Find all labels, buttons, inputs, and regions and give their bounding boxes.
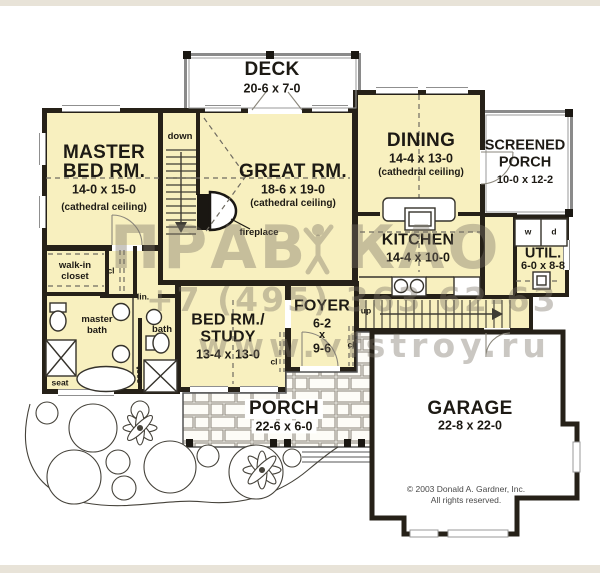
label-seat-right: seat <box>135 366 144 383</box>
label-walkin-1: walk-in <box>59 261 91 271</box>
scan-strip-bottom <box>0 565 600 573</box>
room-label-master-2: BED RM. <box>63 162 145 182</box>
label-dryer: d <box>551 228 556 237</box>
deck-door-opening <box>248 105 302 114</box>
room-dims-porch: 22-6 x 6-0 <box>252 420 317 433</box>
label-master-bath-1: master <box>81 315 112 325</box>
label-down: down <box>168 132 193 142</box>
plant-star <box>123 411 157 445</box>
room-dims-screened: 10-0 x 12-2 <box>497 175 553 187</box>
label-master-bath-2: bath <box>87 326 107 336</box>
window <box>376 87 418 94</box>
room-label-porch: PORCH <box>245 399 323 419</box>
room-dims-deck: 20-6 x 7-0 <box>244 82 301 95</box>
room-label-great: GREAT RM. <box>239 162 347 182</box>
room-label-screened-1: SCREENED <box>485 138 566 153</box>
porch-door-opening <box>480 150 486 184</box>
front-door-opening <box>300 366 340 373</box>
window <box>426 87 468 94</box>
window <box>205 105 241 112</box>
room-note-great: (cathedral ceiling) <box>250 199 336 210</box>
window <box>240 386 278 393</box>
window <box>58 389 114 396</box>
label-walkin-2: closet <box>61 272 88 282</box>
scan-strip-top <box>0 0 600 6</box>
watermark-word2: КАО <box>346 218 501 278</box>
watermark-word1: ПРАВ <box>110 218 308 278</box>
room-note-dining: (cathedral ceiling) <box>378 168 464 179</box>
room-label-garage: GARAGE <box>427 399 512 419</box>
room-dims-master: 14-0 x 15-0 <box>72 183 136 196</box>
window <box>62 105 120 112</box>
room-label-master-1: MASTER <box>63 143 145 163</box>
label-bath: bath <box>152 325 172 335</box>
room-dims-great: 18-6 x 19-0 <box>261 183 325 196</box>
watermark-website: www.vfstroy.ru <box>198 329 551 362</box>
copyright-line1: © 2003 Donald A. Gardner, Inc. <box>407 484 525 494</box>
window <box>312 105 348 112</box>
room-note-master: (cathedral ceiling) <box>61 203 147 214</box>
copyright-line2: All rights reserved. <box>431 495 501 505</box>
room-label-deck: DECK <box>244 60 299 80</box>
label-washer: w <box>525 228 532 237</box>
floor-plan: DECK 20-6 x 7-0 MASTER BED RM. 14-0 x 15… <box>0 0 600 573</box>
room-dims-garage: 22-8 x 22-0 <box>438 419 502 432</box>
label-seat-left: seat <box>51 379 68 388</box>
room-dims-util: 6-0 x 8-8 <box>521 261 565 273</box>
watermark-phone: +7 (495) 363 62-63 <box>146 283 559 316</box>
room-label-dining: DINING <box>387 131 455 151</box>
window <box>190 386 228 393</box>
room-dims-dining: 14-4 x 13-0 <box>389 152 453 165</box>
window <box>39 196 46 228</box>
plant-star <box>243 451 281 489</box>
room-label-screened-2: PORCH <box>499 155 551 170</box>
window <box>39 133 46 165</box>
